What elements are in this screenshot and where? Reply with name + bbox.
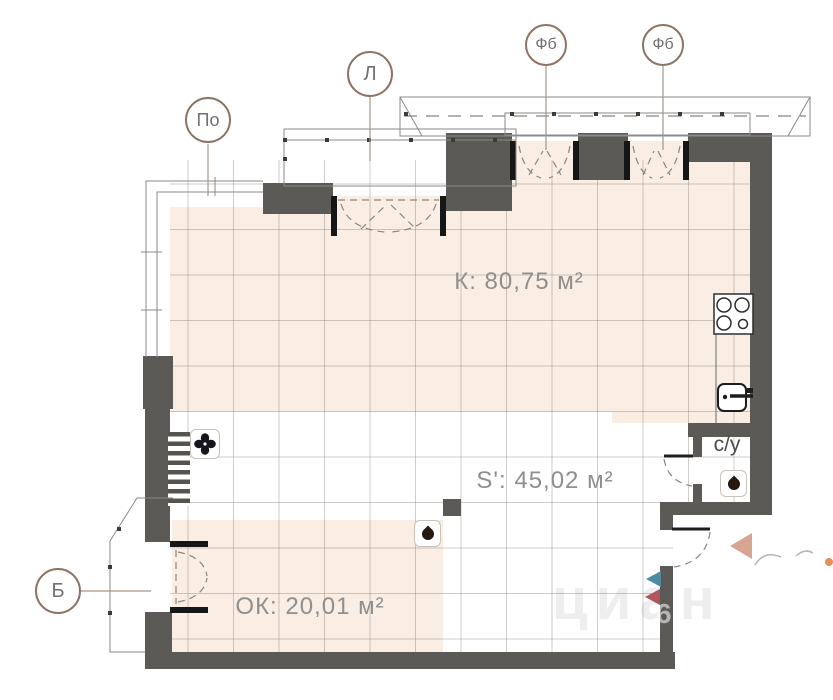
wall-left-step [143, 356, 173, 409]
drop-glyph [725, 475, 742, 492]
wall-segment [263, 183, 333, 214]
room-label-window-room: ОК: 20,01 м² [235, 593, 384, 621]
floor-plan: К: 80,75 м² S': 45,02 м² ОК: 20,01 м² с/… [0, 0, 833, 700]
jamb [510, 141, 516, 180]
marker-balcony: Б [35, 568, 81, 614]
wall-segment [688, 133, 772, 162]
watermark-logo-dot [825, 558, 833, 566]
jamb [440, 196, 446, 236]
wall-left [145, 409, 170, 542]
jamb [624, 141, 630, 180]
marker-french-balcony-2: Фб [642, 24, 684, 66]
marker-french-balcony-1: Фб [525, 24, 567, 66]
column [443, 499, 461, 516]
watermark-digit: 6 [656, 598, 672, 630]
jamb [573, 141, 579, 180]
marker-panoramic-window: По [185, 97, 231, 143]
watermark-scribble [755, 551, 813, 565]
wall-bathroom-bottom [660, 502, 767, 515]
wall-bottom [145, 652, 675, 669]
wall-right [750, 160, 772, 515]
wall-bathroom-jamb [693, 484, 702, 504]
radiator-icon [168, 432, 190, 506]
water-drop-icon [414, 520, 441, 547]
jamb [170, 541, 208, 547]
entrance-arrow [730, 533, 752, 559]
jamb [170, 607, 208, 613]
jamb [683, 141, 689, 180]
room-label-bathroom: с/у [714, 433, 741, 457]
room-label-kitchen-living: К: 80,75 м² [454, 268, 584, 296]
fan-icon [190, 429, 220, 459]
marker-loggia: Л [347, 51, 393, 97]
wall-segment [446, 133, 512, 211]
wall-segment [578, 133, 628, 180]
jamb [331, 196, 337, 236]
watermark-text: циан [552, 566, 723, 633]
wall-bathroom-jamb [693, 437, 702, 457]
floor-window-opening-2 [630, 141, 683, 160]
room-label-apartment-area: S': 45,02 м² [476, 467, 613, 495]
water-drop-icon [720, 470, 747, 497]
drop-glyph [419, 525, 436, 542]
wall-segment [145, 612, 172, 657]
floor-window-opening-1 [516, 141, 573, 160]
wall-entry-stub [660, 502, 673, 530]
